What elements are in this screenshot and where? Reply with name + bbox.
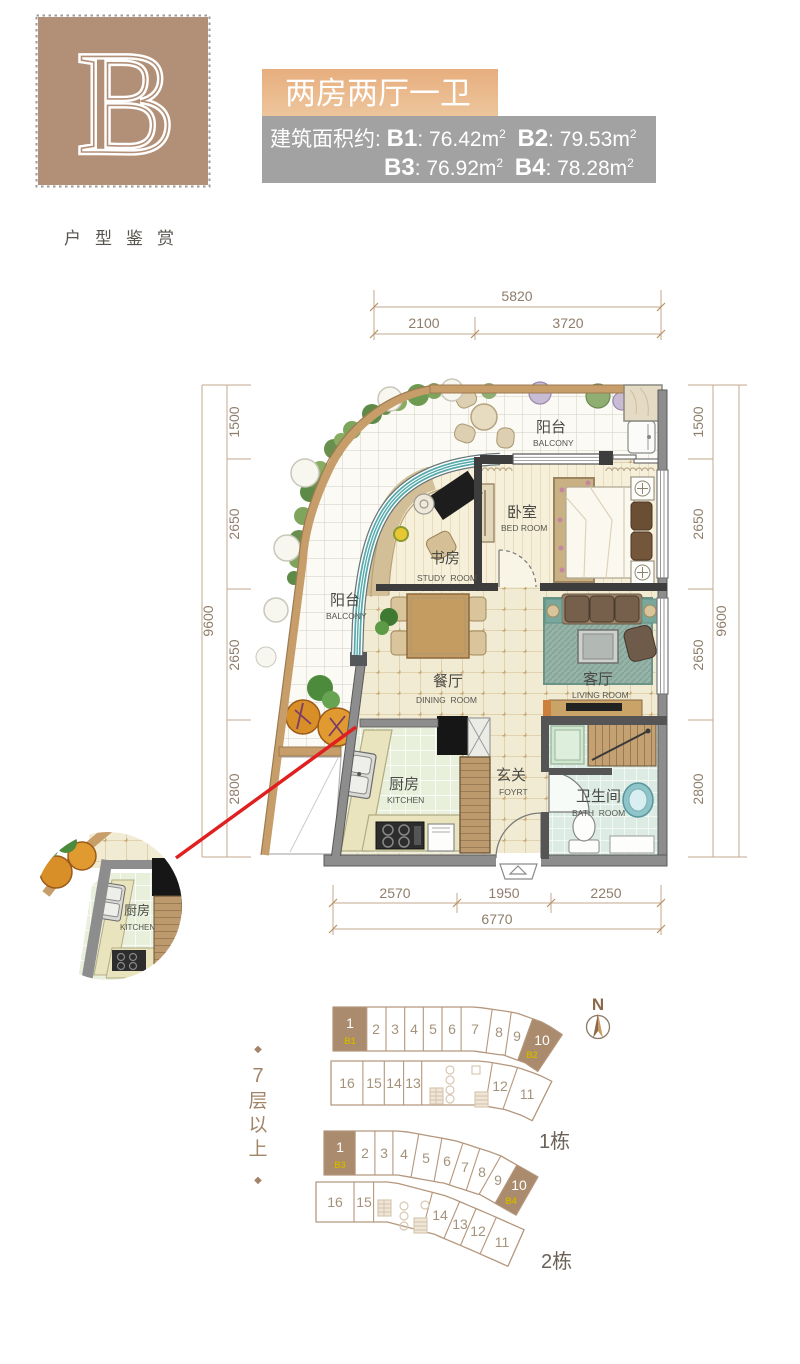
- svg-text:2250: 2250: [590, 885, 621, 901]
- svg-text:7: 7: [461, 1159, 469, 1175]
- svg-text:6770: 6770: [481, 911, 512, 927]
- svg-text:2800: 2800: [690, 773, 706, 804]
- svg-text:15: 15: [366, 1075, 382, 1091]
- svg-text:10: 10: [511, 1177, 527, 1193]
- svg-text:3: 3: [380, 1145, 388, 1161]
- svg-text:以: 以: [248, 1115, 267, 1136]
- svg-text:阳台: 阳台: [536, 419, 566, 436]
- svg-text:1500: 1500: [226, 406, 242, 437]
- svg-text:层: 层: [248, 1091, 267, 1112]
- svg-text:13: 13: [405, 1075, 421, 1091]
- svg-text:2650: 2650: [690, 508, 706, 539]
- svg-text:8: 8: [495, 1024, 503, 1040]
- svg-text:9600: 9600: [713, 605, 729, 636]
- svg-text:B1: B1: [344, 1036, 356, 1046]
- svg-text:卧室: 卧室: [507, 504, 537, 521]
- svg-text:11: 11: [495, 1234, 510, 1250]
- svg-text:13: 13: [452, 1216, 468, 1232]
- svg-text:B2: B2: [526, 1050, 538, 1060]
- svg-text:2650: 2650: [690, 639, 706, 670]
- svg-text:16: 16: [327, 1194, 343, 1210]
- svg-text:KITCHEN: KITCHEN: [120, 923, 155, 932]
- svg-text:1500: 1500: [690, 406, 706, 437]
- svg-text:2650: 2650: [226, 639, 242, 670]
- svg-text:7: 7: [471, 1021, 479, 1037]
- svg-text:2100: 2100: [408, 315, 439, 331]
- svg-text:上: 上: [248, 1138, 267, 1160]
- svg-text:8: 8: [478, 1164, 486, 1180]
- svg-text:5820: 5820: [501, 288, 532, 304]
- svg-text:2: 2: [361, 1145, 369, 1161]
- svg-text:DINING ROOM: DINING ROOM: [416, 695, 477, 705]
- svg-text:3720: 3720: [552, 315, 583, 331]
- svg-text:2800: 2800: [226, 773, 242, 804]
- svg-text:6: 6: [448, 1021, 456, 1037]
- svg-text:5: 5: [422, 1150, 430, 1166]
- svg-text:12: 12: [470, 1223, 486, 1239]
- svg-text:◆: ◆: [254, 1044, 262, 1055]
- svg-text:BALCONY: BALCONY: [533, 438, 574, 448]
- svg-text:10: 10: [534, 1032, 550, 1048]
- svg-text:1950: 1950: [488, 885, 519, 901]
- svg-text:客厅: 客厅: [583, 671, 613, 688]
- svg-text:厨房: 厨房: [389, 776, 419, 793]
- svg-text:FOYRT: FOYRT: [499, 787, 528, 797]
- svg-text:5: 5: [429, 1021, 437, 1037]
- svg-text:4: 4: [400, 1146, 408, 1162]
- svg-text:阳台: 阳台: [330, 592, 360, 609]
- svg-text:卫生间: 卫生间: [576, 788, 621, 805]
- svg-text:书房: 书房: [430, 550, 460, 567]
- svg-text:2: 2: [372, 1021, 380, 1037]
- svg-text:B4: B4: [505, 1196, 517, 1206]
- svg-text:2650: 2650: [226, 508, 242, 539]
- svg-text:餐厅: 餐厅: [433, 673, 463, 690]
- svg-text:4: 4: [410, 1021, 418, 1037]
- svg-text:9600: 9600: [200, 605, 216, 636]
- svg-text:15: 15: [356, 1194, 372, 1210]
- svg-text:16: 16: [339, 1075, 355, 1091]
- svg-text:STUDY ROOM: STUDY ROOM: [417, 573, 477, 583]
- svg-text:BALCONY: BALCONY: [326, 611, 367, 621]
- svg-text:B3: B3: [334, 1160, 346, 1170]
- svg-text:3: 3: [391, 1021, 399, 1037]
- svg-text:玄关: 玄关: [496, 767, 526, 784]
- svg-text:11: 11: [520, 1086, 535, 1102]
- svg-text:BATH ROOM: BATH ROOM: [572, 808, 625, 818]
- svg-text:LIVING ROOM: LIVING ROOM: [572, 690, 629, 700]
- svg-text:2570: 2570: [379, 885, 410, 901]
- svg-text:1: 1: [346, 1015, 354, 1031]
- svg-text:14: 14: [386, 1075, 402, 1091]
- svg-text:9: 9: [494, 1172, 502, 1188]
- svg-text:KITCHEN: KITCHEN: [387, 795, 424, 805]
- svg-text:1: 1: [336, 1139, 344, 1155]
- svg-text:N: N: [592, 995, 604, 1014]
- svg-text:2栋: 2栋: [541, 1250, 572, 1273]
- svg-text:厨房: 厨房: [124, 903, 150, 918]
- svg-text:7: 7: [252, 1065, 263, 1087]
- svg-text:14: 14: [432, 1207, 448, 1223]
- svg-text:◆: ◆: [254, 1175, 262, 1186]
- svg-text:9: 9: [513, 1028, 521, 1044]
- svg-text:1栋: 1栋: [539, 1130, 570, 1153]
- svg-text:6: 6: [443, 1153, 451, 1169]
- svg-text:12: 12: [492, 1078, 508, 1094]
- svg-text:BED ROOM: BED ROOM: [501, 523, 547, 533]
